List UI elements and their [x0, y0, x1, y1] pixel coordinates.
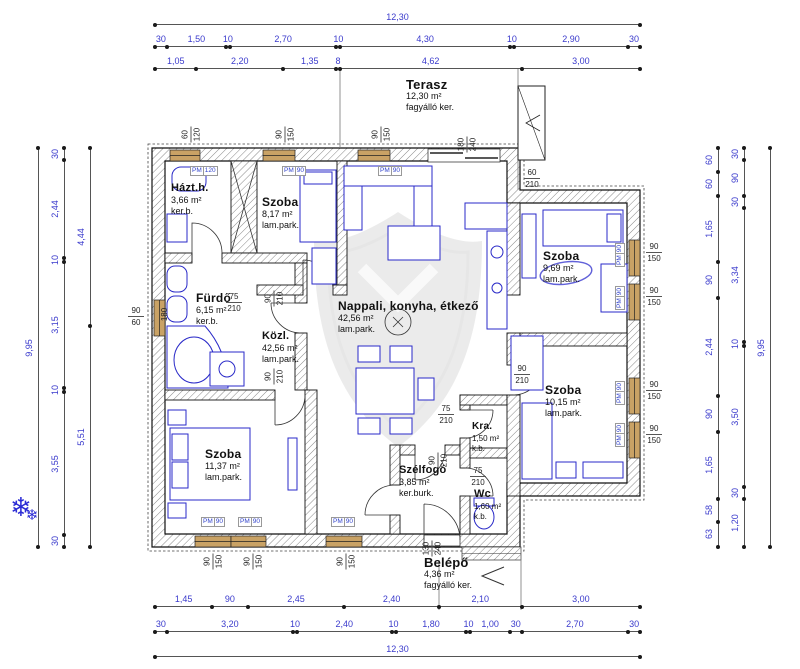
- door-size-annotation: 180240: [457, 137, 478, 153]
- room-label-szelfogo: Szélfogó 3,85 m² ker.burk.: [399, 464, 446, 498]
- window-top-2: [263, 150, 295, 161]
- door-size-annotation: 60210: [524, 168, 540, 189]
- dimension-segment: 58: [706, 499, 724, 522]
- dim-row-bottom-chain1: 1,45902,452,402,103,00: [155, 594, 640, 610]
- window-size-annotation: 90150: [646, 424, 662, 445]
- dimension-value: 30: [50, 536, 60, 546]
- pm-window-tag: PM90: [238, 517, 262, 527]
- window-size-annotation: 90150: [646, 242, 662, 263]
- dimension-value: 1,65: [704, 220, 714, 238]
- pm-window-tag: PM90: [282, 166, 306, 176]
- dimension-value: 63: [704, 529, 714, 539]
- door-size-annotation: 90210: [264, 369, 285, 385]
- door-size-annotation: 90210: [514, 364, 530, 385]
- pm-window-tag: PM90: [378, 166, 402, 176]
- door-size-annotation: 90210: [428, 453, 449, 469]
- dimension-segment: 3,15: [52, 262, 70, 388]
- dimension-segment: 1,65: [706, 432, 724, 498]
- dimension-segment: 3,55: [52, 392, 70, 535]
- dimension-value: 12,30: [115, 644, 680, 655]
- dimension-segment: 1,65: [706, 196, 724, 262]
- room-label-kamra: Kra. 1,50 m² k.b.: [472, 420, 499, 454]
- window-size-annotation: 60120: [181, 127, 202, 143]
- dim-row-bottom-chain2: 303,20102,40101,80101,00302,7030: [155, 619, 640, 635]
- window-size-annotation: 9060: [128, 306, 144, 327]
- dimension-segment: 2,44: [52, 160, 70, 258]
- dimension-value: 30: [50, 149, 60, 159]
- dim-col-right-inner: 60601,65902,44901,655863: [706, 148, 724, 547]
- dimension-value: 1,20: [730, 514, 740, 532]
- dimension-segment: 90: [706, 396, 724, 432]
- dimension-segment: 1,20: [732, 499, 750, 547]
- window-right-4: [629, 422, 640, 458]
- pm-window-tag: PM90: [615, 423, 625, 447]
- window-top-3: [358, 150, 390, 161]
- dimension-segment: 63: [706, 522, 724, 547]
- dimension-segment: 30: [732, 487, 750, 499]
- dimension-segment: 9,95: [26, 148, 44, 547]
- dimension-value: 90: [704, 275, 714, 285]
- dim-col-right-middle: 3090303,34103,50301,20: [732, 148, 750, 547]
- window-top-1: [170, 150, 200, 161]
- door-size-annotation: 75210: [470, 466, 486, 487]
- floor-plan-canvas: 12,30 301,50102,70104,30102,9030 1,052,2…: [0, 0, 800, 669]
- room-label-szoba-west: Szoba 11,37 m² lam.park.: [205, 448, 242, 482]
- pm-window-tag: PM120: [190, 166, 218, 176]
- dimension-value: 2,44: [704, 339, 714, 357]
- dimension-value: 90: [704, 409, 714, 419]
- entry-arrow: [482, 567, 504, 585]
- window-right-3: [629, 378, 640, 414]
- window-size-annotation: 90150: [371, 127, 392, 143]
- pm-window-tag: PM90: [615, 381, 625, 405]
- dim-col-left-middle: 302,44103,15103,5530: [52, 148, 70, 547]
- dimension-value: 90: [730, 173, 740, 183]
- dimension-value: 9,95: [756, 339, 766, 357]
- room-label-wc: Wc 1,60 m² k.b.: [474, 488, 501, 522]
- window-size-annotation: 90150: [336, 554, 357, 570]
- dim-row-top-chain2: 1,052,201,3584,623,00: [155, 56, 640, 72]
- window-bottom-1: [195, 536, 231, 547]
- door-size-annotation: 75210: [226, 292, 242, 313]
- dimension-value: 3,15: [50, 316, 60, 334]
- pm-window-tag: PM90: [201, 517, 225, 527]
- pm-window-tag: PM90: [615, 243, 625, 267]
- room-label-kozl: Közl. 42,56 m² lam.park.: [262, 330, 299, 364]
- window-size-annotation: 90150: [646, 380, 662, 401]
- pm-window-tag: PM90: [615, 286, 625, 310]
- dimension-segment: 30: [732, 148, 750, 160]
- dimension-segment: 60: [706, 172, 724, 196]
- window-right-1: [629, 240, 640, 276]
- dimension-segment: 30: [732, 196, 750, 208]
- dimension-segment: 90: [706, 262, 724, 298]
- dimension-value: 30: [730, 488, 740, 498]
- dimension-segment: 4,44: [78, 148, 96, 326]
- dimension-value: 3,00: [482, 594, 680, 605]
- dimension-segment: 3,50: [732, 346, 750, 487]
- dimension-value: 12,30: [115, 12, 680, 23]
- room-label-szoba-east-lower: Szoba 10,15 m² lam.park.: [545, 384, 582, 418]
- dimension-segment: 3,34: [732, 208, 750, 342]
- door-size-annotation: 130240: [422, 541, 443, 557]
- window-size-annotation: 90150: [203, 554, 224, 570]
- dim-row-bottom-total: 12,30: [155, 644, 640, 660]
- dimension-value: 30: [730, 197, 740, 207]
- dimension-value: 3,55: [50, 455, 60, 473]
- dimension-value: 2,44: [50, 200, 60, 218]
- room-label-terasz: Terasz 12,30 m² fagyálló ker.: [406, 78, 454, 112]
- window-bottom-2: [231, 536, 266, 547]
- snowflake-symbol: ❄❄: [10, 492, 44, 523]
- room-label-hazth: Házt.h. 3,66 m² ker.b.: [171, 182, 208, 216]
- room-label-nappali: Nappali, konyha, étkező 42,56 m² lam.par…: [338, 300, 479, 334]
- window-bottom-3: [326, 536, 362, 547]
- dimension-segment: 30: [52, 148, 70, 160]
- pm-window-tag: PM90: [331, 517, 355, 527]
- dimension-value: 3,00: [482, 56, 680, 67]
- dim-row-top-total: 12,30: [155, 12, 640, 28]
- window-size-annotation: 90150: [243, 554, 264, 570]
- dimension-segment: 60: [706, 148, 724, 172]
- chimney: [518, 86, 545, 160]
- room-label-szoba-east-upper: Szoba 9,69 m² lam.park.: [543, 250, 580, 284]
- dimension-segment: 30: [628, 34, 640, 50]
- dimension-value: 30: [588, 619, 680, 630]
- dimension-value: 4,44: [76, 228, 86, 246]
- floor-plan-drawing: [0, 0, 800, 669]
- window-right-2: [629, 284, 640, 320]
- dimension-value: 1,65: [704, 457, 714, 475]
- dimension-value: 30: [588, 34, 680, 45]
- dimension-segment: 90: [732, 160, 750, 196]
- dimension-value: 3,34: [730, 266, 740, 284]
- dim-col-right-outer: 9,95: [758, 148, 776, 547]
- door-size-annotation: 90210: [264, 291, 285, 307]
- dimension-value: 9,95: [24, 339, 34, 357]
- dimension-value: 58: [704, 505, 714, 515]
- door-size-annotation: 75210: [438, 404, 454, 425]
- dimension-segment: 2,44: [706, 298, 724, 396]
- dimension-segment: 5,51: [78, 326, 96, 547]
- dimension-segment: 9,95: [758, 148, 776, 547]
- dimension-segment: 3,00: [522, 56, 640, 72]
- dimension-value: 60: [704, 179, 714, 189]
- room-label-szoba-north: Szoba 8,17 m² lam.park.: [262, 196, 299, 230]
- dimension-segment: 30: [52, 535, 70, 547]
- dimension-value: 5,51: [76, 428, 86, 446]
- dim-col-left-inner: 4,445,51: [78, 148, 96, 547]
- dim-row-top-chain: 301,50102,70104,30102,9030: [155, 34, 640, 50]
- window-size-annotation: 90150: [646, 286, 662, 307]
- dimension-segment: 12,30: [155, 12, 640, 28]
- window-size-annotation: 90150: [275, 127, 296, 143]
- dim-col-left-outer: 9,95: [26, 148, 44, 547]
- window-sill-annotation: 180: [160, 308, 169, 321]
- dimension-segment: 3,00: [522, 594, 640, 610]
- bathroom-fixtures: [167, 266, 244, 388]
- dimension-segment: 12,30: [155, 644, 640, 660]
- dimension-value: 3,50: [730, 408, 740, 426]
- dimension-segment: 30: [628, 619, 640, 635]
- room-label-belepo: Belépő 4,36 m² fagyálló ker.: [424, 556, 472, 590]
- dimension-value: 60: [704, 155, 714, 165]
- dimension-value: 30: [730, 149, 740, 159]
